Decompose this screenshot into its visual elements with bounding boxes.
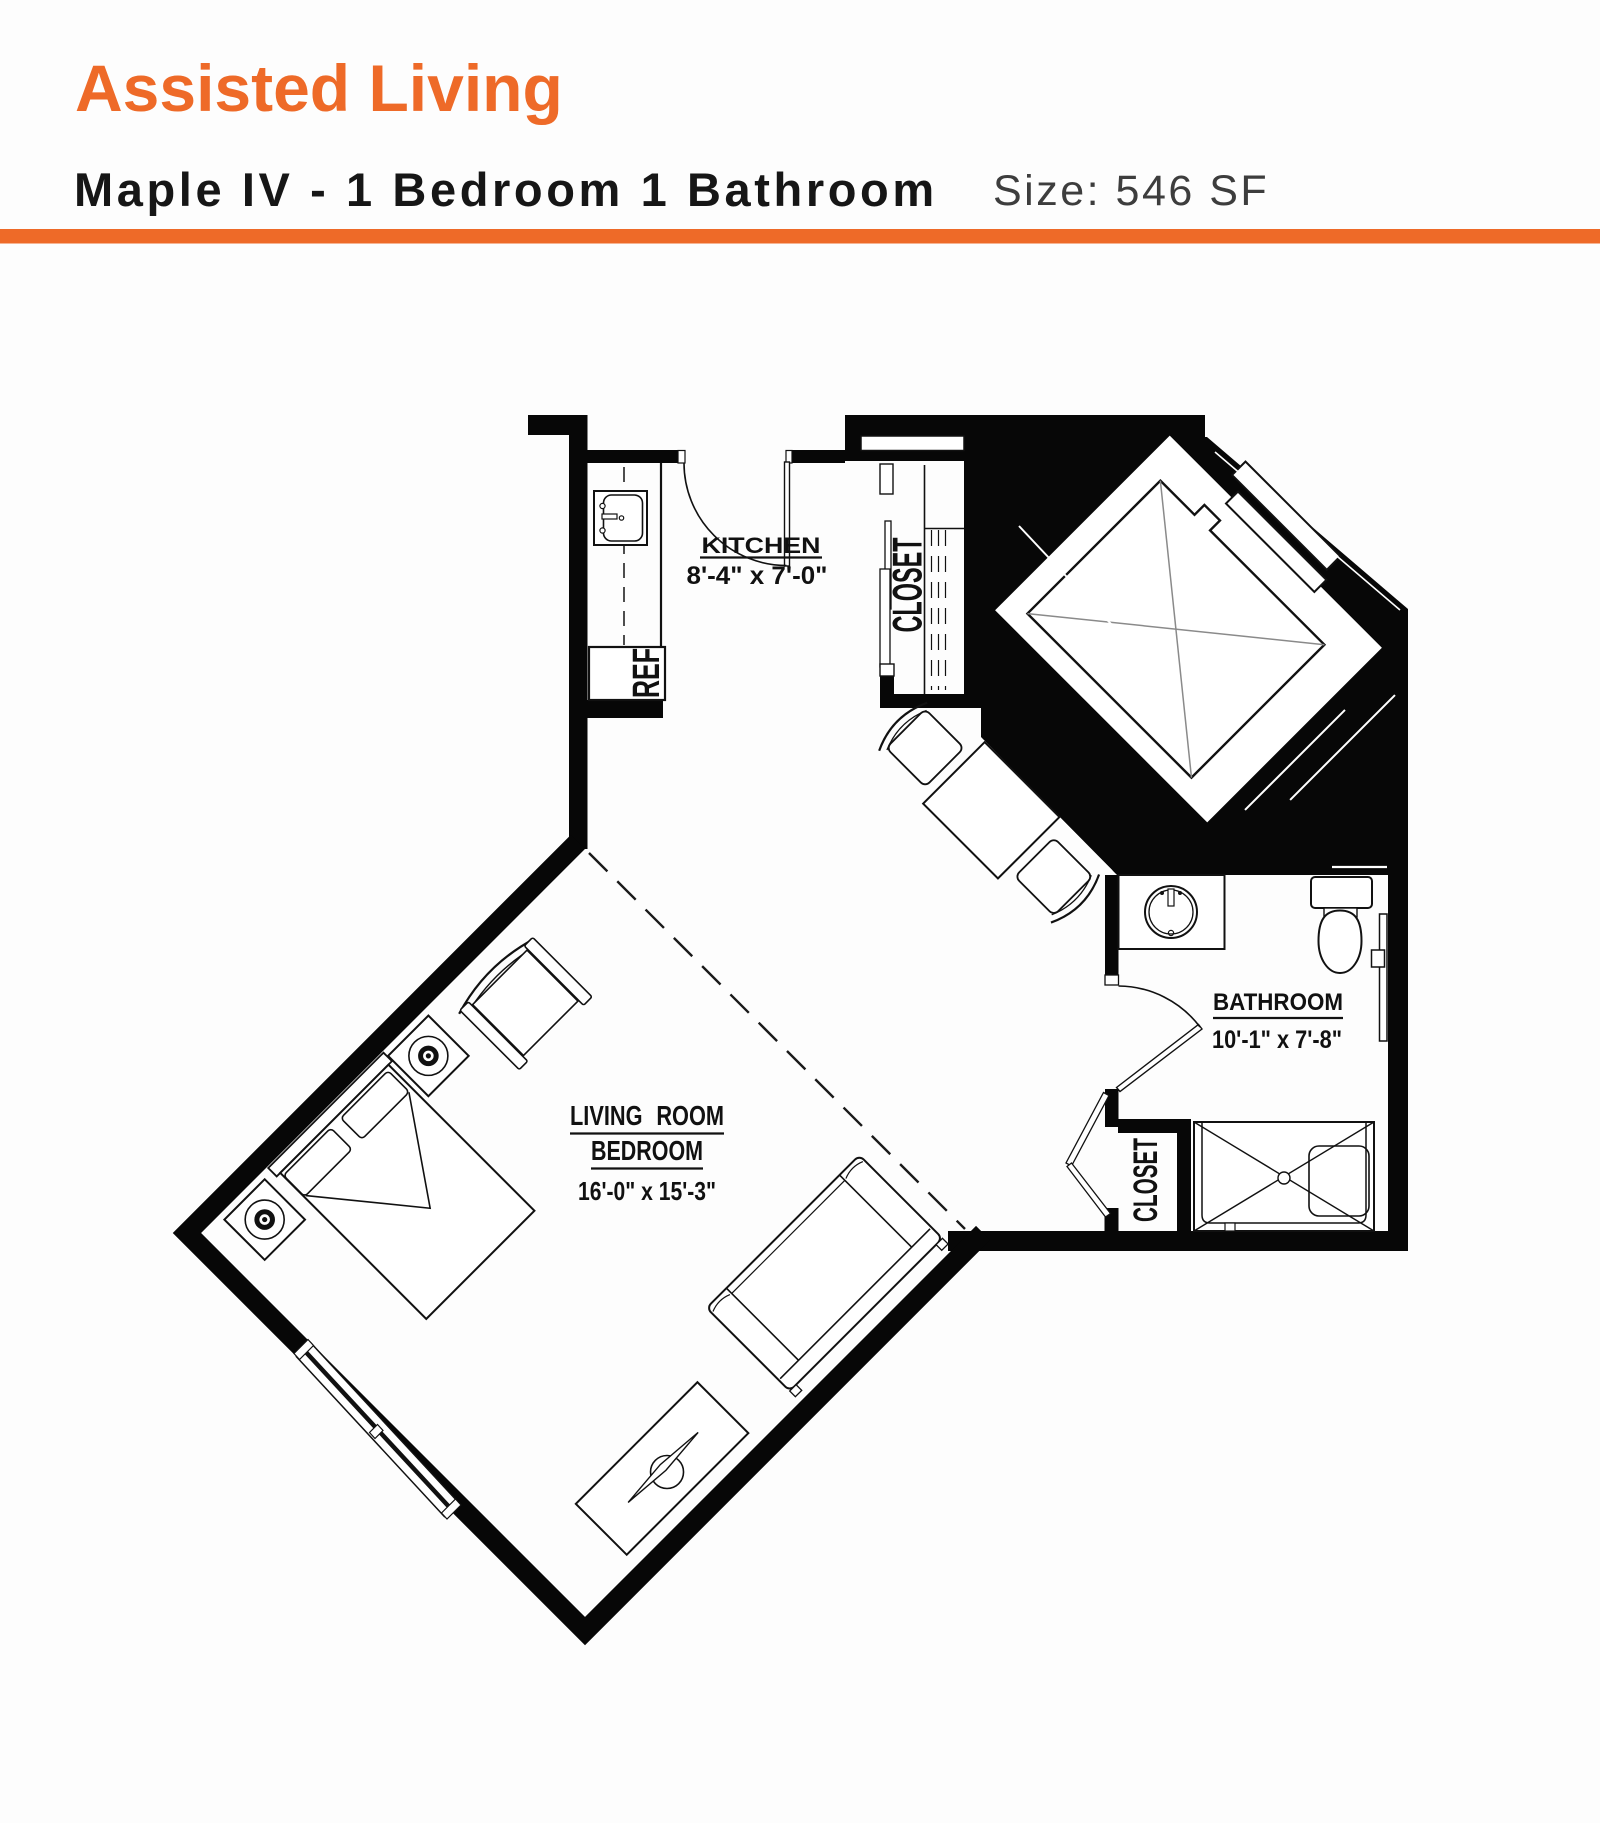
svg-text:16'-0" x 15'-3": 16'-0" x 15'-3" <box>578 1176 716 1206</box>
svg-text:BEDROOM: BEDROOM <box>591 1135 703 1166</box>
svg-text:8'-4" x 7'-0": 8'-4" x 7'-0" <box>687 562 828 590</box>
svg-text:Maple IV - 1 Bedroom 1 Bathroo: Maple IV - 1 Bedroom 1 Bathroom <box>74 163 938 216</box>
svg-text:CLOSET: CLOSET <box>884 537 931 632</box>
svg-text:10'-1" x 7'-8": 10'-1" x 7'-8" <box>1212 1026 1342 1054</box>
svg-text:KITCHEN: KITCHEN <box>702 533 821 558</box>
svg-text:Size: 546 SF: Size: 546 SF <box>993 167 1269 215</box>
svg-text:Assisted Living: Assisted Living <box>75 51 563 125</box>
svg-text:REF: REF <box>626 648 668 698</box>
svg-text:CLOSET: CLOSET <box>1127 1138 1165 1222</box>
svg-text:LIVING ROOM: LIVING ROOM <box>570 1100 724 1131</box>
svg-text:BATHROOM: BATHROOM <box>1213 989 1343 1016</box>
